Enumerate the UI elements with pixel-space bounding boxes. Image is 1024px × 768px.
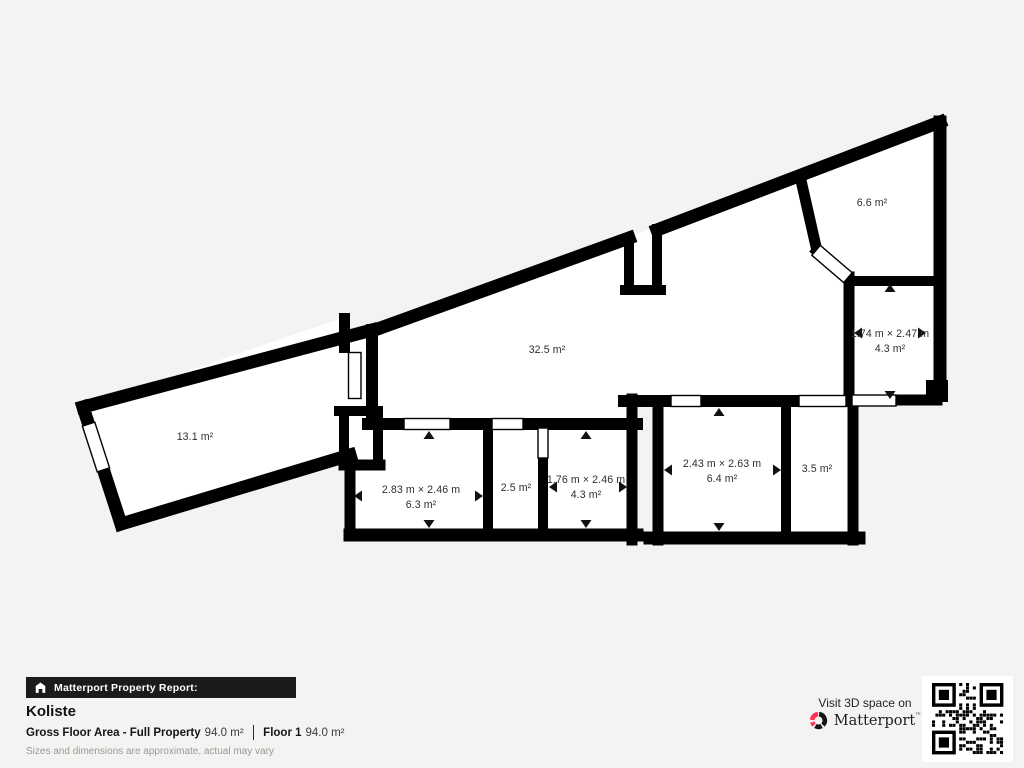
gross-floor-area-label: Gross Floor Area - Full Property <box>26 727 201 739</box>
room-dimensions-label: 1.76 m × 2.46 m <box>547 474 625 486</box>
room-area-label: 3.5 m² <box>802 463 833 475</box>
trademark-symbol: ™ <box>915 712 921 719</box>
property-name: Koliste <box>26 703 76 720</box>
floor-area-summary: Gross Floor Area - Full Property 94.0 m²… <box>26 725 345 740</box>
wall-step <box>926 380 948 402</box>
door-bottom-room-5 <box>799 396 846 407</box>
room-area-label: 13.1 m² <box>177 431 214 443</box>
bottom-room-4-floor <box>656 401 786 540</box>
room-area-label: 6.6 m² <box>857 197 888 209</box>
room-area-label: 2.5 m² <box>501 482 532 494</box>
room-dimensions-label: 2.43 m × 2.63 m <box>683 458 761 470</box>
room-dimensions-label: 1.74 m × 2.47 m <box>851 328 929 340</box>
room-area-label: 6.4 m² <box>707 473 738 485</box>
room-area-label: 4.3 m² <box>571 489 602 501</box>
divider <box>253 725 255 740</box>
matterport-link[interactable]: Matterport™ <box>795 711 935 730</box>
room-dimensions-label: 2.83 m × 2.46 m <box>382 484 460 496</box>
gross-floor-area-value: 94.0 m² <box>205 727 244 739</box>
house-icon <box>34 681 47 694</box>
qr-code <box>932 683 1004 755</box>
door-left-room <box>349 353 362 399</box>
door-bottom-room-2 <box>492 419 523 430</box>
floor-value: 94.0 m² <box>306 727 345 739</box>
disclaimer-text: Sizes and dimensions are approximate, ac… <box>26 746 274 757</box>
room-area-label: 4.3 m² <box>875 343 906 355</box>
door-bottom-room-1 <box>404 419 450 430</box>
floor-label: Floor 1 <box>263 727 301 739</box>
room-floors <box>83 122 940 540</box>
visit-3d-text: Visit 3D space on <box>795 696 935 710</box>
matterport-logo-icon <box>809 711 828 730</box>
wall-pillar <box>339 313 350 353</box>
room-area-label: 6.3 m² <box>406 499 437 511</box>
room-area-label: 32.5 m² <box>529 344 566 356</box>
matterport-wordmark: Matterport™ <box>834 712 921 729</box>
floor-plan: 6.6 m² 1.74 m × 2.47 m 4.3 m² 32.5 m² 13… <box>0 0 1024 768</box>
qr-code-card <box>922 676 1013 762</box>
bottom-room-2-floor <box>488 424 543 535</box>
door-bottom-room-3 <box>538 428 548 458</box>
door-bottom-room-4 <box>671 396 701 407</box>
report-badge: Matterport Property Report: <box>26 677 296 698</box>
report-badge-label: Matterport Property Report: <box>54 682 198 694</box>
